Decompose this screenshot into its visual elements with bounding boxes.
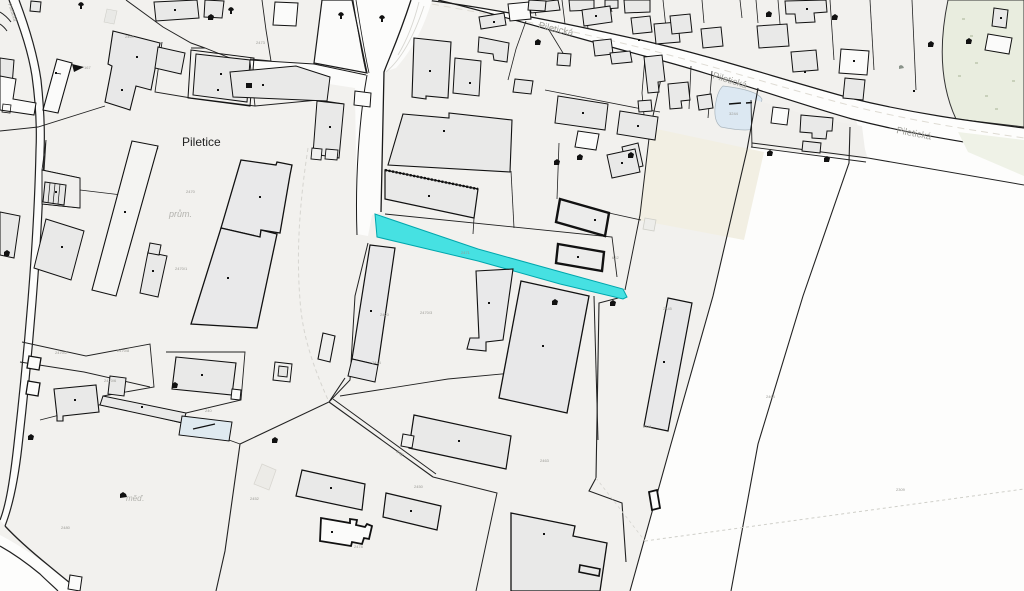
svg-text:2470/1: 2470/1 <box>175 266 188 271</box>
svg-text:2480: 2480 <box>61 525 71 530</box>
svg-text:2463: 2463 <box>540 458 550 463</box>
svg-text:2470: 2470 <box>186 189 196 194</box>
svg-text:2469: 2469 <box>125 34 135 39</box>
svg-text:2464: 2464 <box>766 394 776 399</box>
svg-text:prům.: prům. <box>168 209 192 219</box>
svg-text:2420: 2420 <box>380 312 390 317</box>
svg-text:2473: 2473 <box>256 40 266 45</box>
svg-text:2470/6: 2470/6 <box>104 378 117 383</box>
svg-text:3244: 3244 <box>729 111 739 116</box>
svg-text:2452: 2452 <box>250 496 260 501</box>
svg-text:2471: 2471 <box>461 250 471 255</box>
svg-text:167: 167 <box>84 65 91 70</box>
svg-text:632: 632 <box>612 255 619 260</box>
svg-text:2470/3: 2470/3 <box>420 310 433 315</box>
svg-text:Piletice: Piletice <box>182 135 221 149</box>
svg-text:2445: 2445 <box>663 306 673 311</box>
svg-text:2478: 2478 <box>354 544 364 549</box>
svg-text:2470/8: 2470/8 <box>117 348 130 353</box>
svg-text:2470/2: 2470/2 <box>55 350 68 355</box>
svg-text:2309: 2309 <box>896 487 906 492</box>
svg-text:měď.: měď. <box>126 494 144 503</box>
svg-text:240: 240 <box>205 408 212 413</box>
svg-text:2450: 2450 <box>414 484 424 489</box>
svg-text:2441: 2441 <box>643 424 653 429</box>
svg-text:2444: 2444 <box>372 360 382 365</box>
